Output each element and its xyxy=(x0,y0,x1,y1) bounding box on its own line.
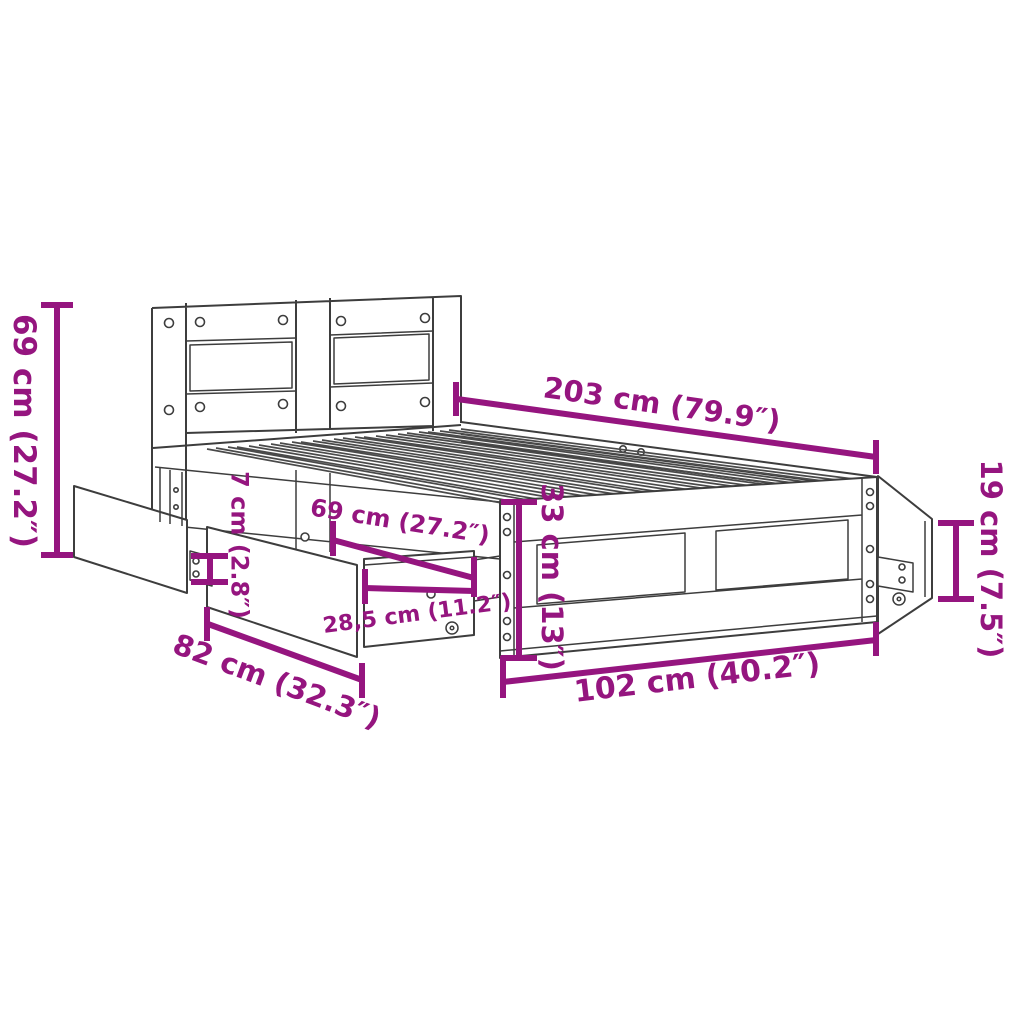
screw-hole xyxy=(337,402,346,411)
headboard-recessed-panel-right xyxy=(334,334,429,384)
glide-hole xyxy=(174,505,178,509)
dimension-headboard-height: 69 cm (27.2″) xyxy=(6,305,73,555)
screw-hole xyxy=(165,319,174,328)
headboard-recessed-panel-left xyxy=(190,342,292,391)
dimension-drawer-height: 19 cm (7.5″) xyxy=(938,460,1008,659)
screw-hole xyxy=(899,564,905,570)
dimension-drawer-height-label: 19 cm (7.5″) xyxy=(974,460,1008,659)
screw-hole xyxy=(899,577,905,583)
screw-hole xyxy=(504,529,511,536)
headboard-panel-lines xyxy=(186,331,433,394)
right-drawer-panel xyxy=(878,476,932,634)
right-drawer-bracket xyxy=(878,557,913,592)
screw-hole xyxy=(867,546,874,553)
dimension-frame-height-label: 33 cm (13″) xyxy=(535,483,569,671)
screw-hole xyxy=(504,618,511,625)
dimension-bed-width-label: 102 cm (40.2″) xyxy=(572,646,822,710)
glide-hole xyxy=(174,488,178,492)
screw-hole xyxy=(165,406,174,415)
screw-hole xyxy=(279,400,288,409)
screw-hole xyxy=(504,572,511,579)
screw-hole xyxy=(867,596,874,603)
dimension-rail-height-label: 7 cm (2.8″) xyxy=(226,471,254,619)
right-drawer xyxy=(878,476,932,634)
screw-hole xyxy=(867,503,874,510)
diagram-canvas: 69 cm (27.2″) 203 cm (79.9″) 69 cm (27.2… xyxy=(0,0,1024,1024)
screw-hole xyxy=(504,514,511,521)
screw-hole xyxy=(504,634,511,641)
screw-hole xyxy=(196,318,205,327)
dimension-headboard-height-label: 69 cm (27.2″) xyxy=(6,314,42,548)
screw-hole xyxy=(867,489,874,496)
dimension-drawer-height-line xyxy=(938,523,974,599)
screw-hole xyxy=(196,403,205,412)
screw-hole xyxy=(867,581,874,588)
screw-hole xyxy=(193,571,199,577)
screw-hole xyxy=(279,316,288,325)
screw-hole xyxy=(421,314,430,323)
product-dimension-diagram: 69 cm (27.2″) 203 cm (79.9″) 69 cm (27.2… xyxy=(0,0,1024,1024)
screw-hole xyxy=(421,398,430,407)
dimension-headboard-height-line xyxy=(41,305,73,555)
screw-hole xyxy=(301,533,309,541)
screw-hole xyxy=(337,317,346,326)
